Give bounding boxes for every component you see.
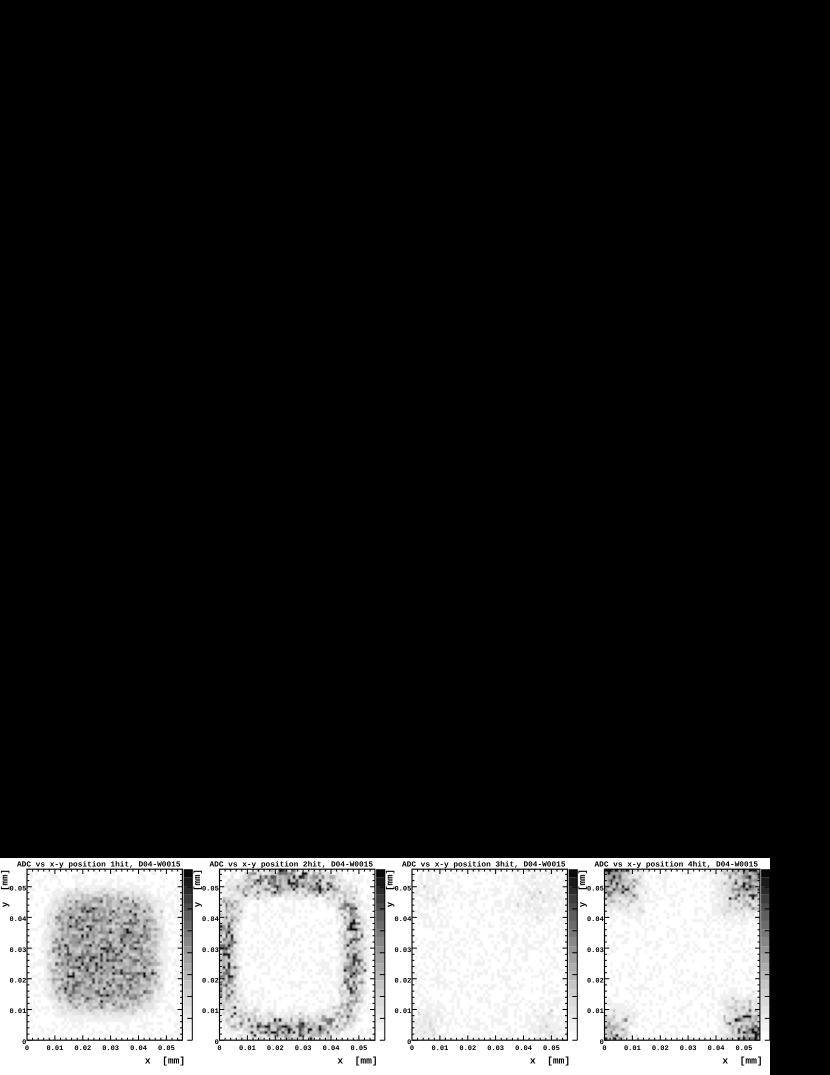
svg-text:0.02: 0.02 bbox=[459, 1045, 476, 1053]
svg-text:0.01: 0.01 bbox=[587, 1008, 604, 1016]
svg-text:0.05: 0.05 bbox=[394, 885, 411, 893]
svg-text:y [mm]: y [mm] bbox=[577, 869, 588, 907]
svg-text:0.05: 0.05 bbox=[202, 885, 219, 893]
svg-text:0.02: 0.02 bbox=[9, 978, 26, 986]
svg-text:ADC vs x-y position 4hit, D04-: ADC vs x-y position 4hit, D04-W0015 bbox=[595, 860, 759, 869]
svg-text:y [mm]: y [mm] bbox=[0, 869, 10, 907]
svg-text:0.04: 0.04 bbox=[323, 1045, 340, 1053]
svg-text:0.01: 0.01 bbox=[239, 1045, 256, 1053]
svg-text:0.04: 0.04 bbox=[9, 916, 26, 924]
svg-text:0.01: 0.01 bbox=[202, 1008, 219, 1016]
svg-text:0.05: 0.05 bbox=[158, 1045, 175, 1053]
svg-text:0.03: 0.03 bbox=[394, 947, 411, 955]
svg-text:0.03: 0.03 bbox=[487, 1045, 504, 1053]
svg-text:0.04: 0.04 bbox=[130, 1045, 147, 1053]
svg-text:0.05: 0.05 bbox=[543, 1045, 560, 1053]
svg-text:0: 0 bbox=[22, 1039, 26, 1047]
svg-text:0.02: 0.02 bbox=[74, 1045, 91, 1053]
svg-text:0.02: 0.02 bbox=[587, 978, 604, 986]
svg-text:ADC vs x-y position 2hit, D04-: ADC vs x-y position 2hit, D04-W0015 bbox=[210, 860, 374, 869]
svg-text:0.01: 0.01 bbox=[431, 1045, 448, 1053]
svg-text:0.03: 0.03 bbox=[587, 947, 604, 955]
svg-text:y [mm]: y [mm] bbox=[192, 869, 203, 907]
svg-text:0.02: 0.02 bbox=[652, 1045, 669, 1053]
svg-text:0: 0 bbox=[407, 1039, 411, 1047]
svg-text:x [mm]: x [mm] bbox=[337, 1055, 377, 1066]
svg-text:0.02: 0.02 bbox=[202, 978, 219, 986]
svg-text:0.03: 0.03 bbox=[9, 947, 26, 955]
svg-text:0.03: 0.03 bbox=[295, 1045, 312, 1053]
svg-text:0.04: 0.04 bbox=[515, 1045, 532, 1053]
svg-text:0.05: 0.05 bbox=[9, 885, 26, 893]
svg-text:0.05: 0.05 bbox=[587, 885, 604, 893]
svg-text:0.01: 0.01 bbox=[394, 1008, 411, 1016]
svg-text:y [mm]: y [mm] bbox=[384, 869, 395, 907]
svg-text:x [mm]: x [mm] bbox=[722, 1055, 762, 1066]
svg-text:x [mm]: x [mm] bbox=[145, 1055, 185, 1066]
svg-text:0.01: 0.01 bbox=[9, 1008, 26, 1016]
svg-text:0.01: 0.01 bbox=[46, 1045, 63, 1053]
svg-text:0.03: 0.03 bbox=[202, 947, 219, 955]
svg-text:0.02: 0.02 bbox=[267, 1045, 284, 1053]
svg-text:ADC vs x-y position 3hit, D04-: ADC vs x-y position 3hit, D04-W0015 bbox=[402, 860, 566, 869]
svg-text:0.04: 0.04 bbox=[202, 916, 219, 924]
svg-text:0.01: 0.01 bbox=[624, 1045, 641, 1053]
svg-text:0.03: 0.03 bbox=[680, 1045, 697, 1053]
svg-text:0.02: 0.02 bbox=[394, 978, 411, 986]
svg-text:x [mm]: x [mm] bbox=[530, 1055, 570, 1066]
svg-text:0.05: 0.05 bbox=[735, 1045, 752, 1053]
svg-text:0.04: 0.04 bbox=[708, 1045, 725, 1053]
svg-text:0.03: 0.03 bbox=[102, 1045, 119, 1053]
svg-text:0.04: 0.04 bbox=[394, 916, 411, 924]
svg-text:0.04: 0.04 bbox=[587, 916, 604, 924]
svg-text:0: 0 bbox=[215, 1039, 219, 1047]
svg-text:0.05: 0.05 bbox=[350, 1045, 367, 1053]
svg-text:0: 0 bbox=[600, 1039, 604, 1047]
svg-text:ADC vs x-y position 1hit, D04-: ADC vs x-y position 1hit, D04-W0015 bbox=[17, 860, 181, 869]
